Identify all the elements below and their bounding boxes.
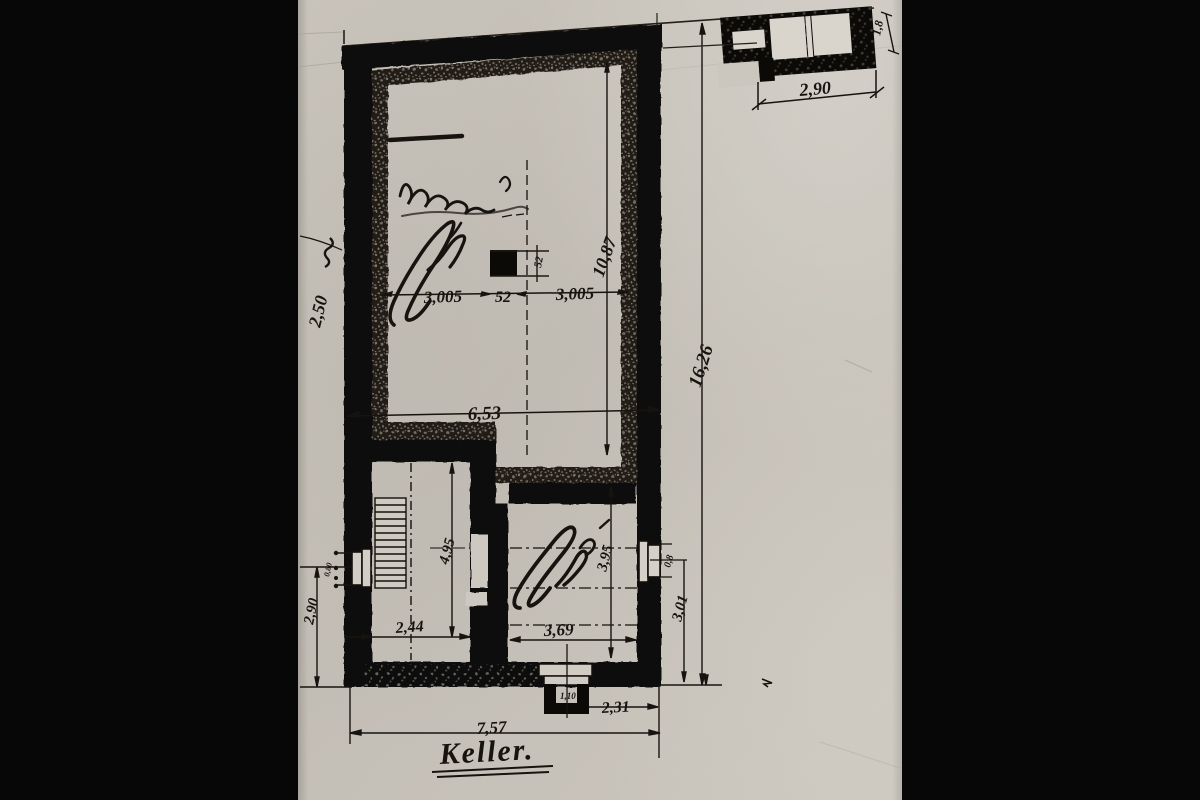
- svg-text:2,44: 2,44: [394, 618, 424, 637]
- svg-text:52: 52: [495, 289, 511, 306]
- svg-text:Keller.: Keller.: [438, 733, 535, 771]
- svg-text:3,69: 3,69: [542, 620, 574, 640]
- svg-text:3,005: 3,005: [422, 287, 462, 307]
- svg-text:6,53: 6,53: [467, 403, 501, 425]
- svg-text:2,31: 2,31: [600, 699, 630, 717]
- svg-text:3,005: 3,005: [554, 284, 594, 304]
- svg-text:2,90: 2,90: [798, 77, 832, 100]
- svg-text:1,10: 1,10: [560, 691, 576, 701]
